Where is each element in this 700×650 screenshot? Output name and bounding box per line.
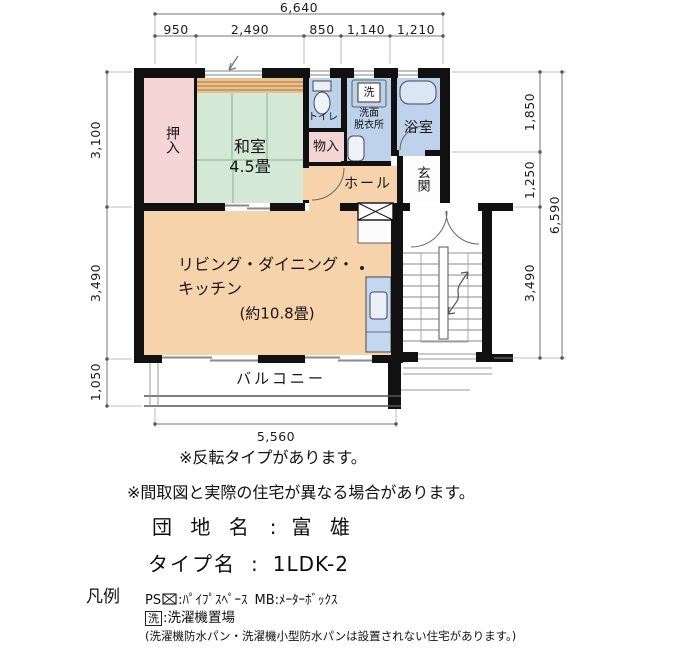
legend-mb-label: MB — [254, 594, 274, 607]
room-label-laundry: 洗 — [364, 87, 375, 98]
dim-top-seg-2: 2,490 — [231, 24, 269, 37]
room-label-toilet: トイレ — [308, 113, 338, 123]
note-plan-differs: ※間取図と実際の住宅が異なる場合があります。 — [127, 485, 475, 501]
room-label-senmen-2: 脱衣所 — [354, 121, 384, 131]
room-label-balcony: バルコニー — [236, 372, 326, 387]
dim-left-seg-2: 3,490 — [90, 264, 103, 302]
note-reverse-type: ※反転タイプがあります。 — [179, 450, 367, 466]
type-name-value: 1LDK-2 — [273, 552, 349, 576]
type-name-line: タイプ名:1LDK-2 — [148, 554, 349, 574]
floorplan-graphic — [0, 0, 700, 650]
type-name-label: タイプ名 — [148, 552, 236, 576]
room-label-senmen-1: 洗面 — [359, 109, 379, 119]
legend-laundry-note: (洗濯機防水パン・洗濯機小型防水パンは設置されない住宅があります。) — [145, 631, 516, 643]
room-label-washitsu: 和室 — [234, 139, 266, 155]
dim-left-seg-3: 1,050 — [90, 363, 103, 401]
dim-bottom-width: 5,560 — [257, 431, 295, 444]
room-label-bath: 浴室 — [404, 121, 434, 135]
legend-ps-desc: :ﾊﾟｲﾌﾟｽﾍﾟｰｽ — [178, 594, 247, 607]
dim-right-seg-3: 3,490 — [524, 264, 537, 302]
room-label-oshiire: 押入 — [164, 126, 180, 154]
estate-name-label: 団 地 名 — [152, 515, 255, 539]
room-label-ldk-1: リビング・ダイニング・ — [178, 257, 354, 273]
estate-name-value: 富 雄 — [291, 515, 355, 539]
type-name-colon: : — [251, 554, 258, 574]
legend-laundry-desc: :洗濯機置場 — [163, 612, 235, 626]
dim-right-seg-2: 1,250 — [524, 161, 537, 199]
laundry-mark-icon: 洗 — [145, 611, 162, 626]
room-label-washitsu-size: 4.5畳 — [229, 159, 270, 175]
room-label-genkan: 玄関 — [414, 166, 429, 192]
floorplan-page: 6,640 950 2,490 850 1,140 1,210 3,100 3,… — [0, 0, 700, 650]
dim-top-seg-5: 1,210 — [397, 24, 435, 37]
legend-title: 凡例 — [86, 589, 120, 606]
room-label-hall: ホール — [344, 177, 392, 191]
legend-row-laundry: 洗 :洗濯機置場 — [145, 611, 235, 626]
dim-right-seg-1: 1,850 — [524, 93, 537, 131]
room-label-ldk-2: キッチン — [178, 281, 242, 297]
dim-top-seg-3: 850 — [309, 24, 334, 37]
dim-top-total: 6,640 — [280, 2, 318, 15]
dim-left-seg-1: 3,100 — [90, 121, 103, 159]
dim-top-seg-1: 950 — [163, 24, 188, 37]
legend-ps-label: PS — [145, 594, 161, 607]
room-label-storage: 物入 — [313, 141, 339, 154]
legend-mb-desc: :ﾒｰﾀｰﾎﾞｯｸｽ — [275, 594, 338, 607]
dim-top-seg-4: 1,140 — [347, 24, 385, 37]
estate-name-line: 団 地 名:富 雄 — [152, 517, 356, 537]
legend-row-ps-mb: PS :ﾊﾟｲﾌﾟｽﾍﾟｰｽ MB :ﾒｰﾀｰﾎﾞｯｸｽ — [145, 593, 338, 608]
estate-name-colon: : — [270, 517, 277, 537]
room-label-ldk-size: (約10.8畳) — [239, 307, 314, 322]
dim-right-total: 6,590 — [549, 196, 562, 234]
pipe-space-icon — [162, 593, 177, 608]
